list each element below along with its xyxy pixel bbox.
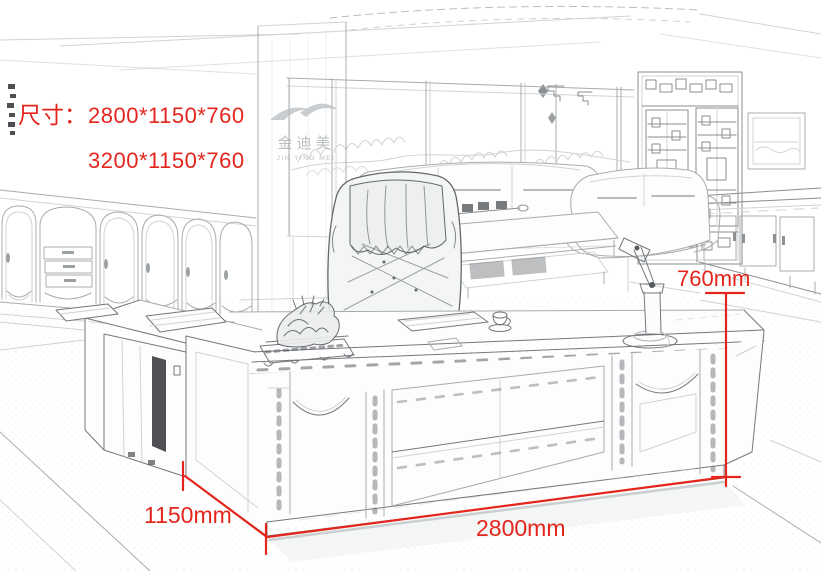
width-dimension-label: 2800mm — [476, 516, 565, 541]
size-panel-label: 尺寸： — [18, 103, 87, 128]
size-option-1: 2800*1150*760 — [88, 104, 245, 128]
executive-chair-sketch — [328, 172, 461, 332]
product-dimension-image: 金迪美 JIN YING MEI — [0, 0, 821, 571]
logo-en-text: JIN YING MEI — [277, 155, 336, 162]
size-option-2: 3200*1150*760 — [88, 149, 245, 173]
wall-picture-sketch — [748, 113, 805, 169]
logo-cn-text: 金迪美 — [277, 135, 334, 152]
left-edge-marks — [7, 84, 16, 135]
pendant-lamp-icon — [538, 84, 548, 98]
brand-logo: 金迪美 JIN YING MEI — [270, 104, 338, 162]
depth-dimension-label: 1150mm — [144, 503, 232, 528]
pendant-lamp-icon — [548, 112, 556, 124]
height-dimension-label: 760mm — [677, 267, 750, 291]
